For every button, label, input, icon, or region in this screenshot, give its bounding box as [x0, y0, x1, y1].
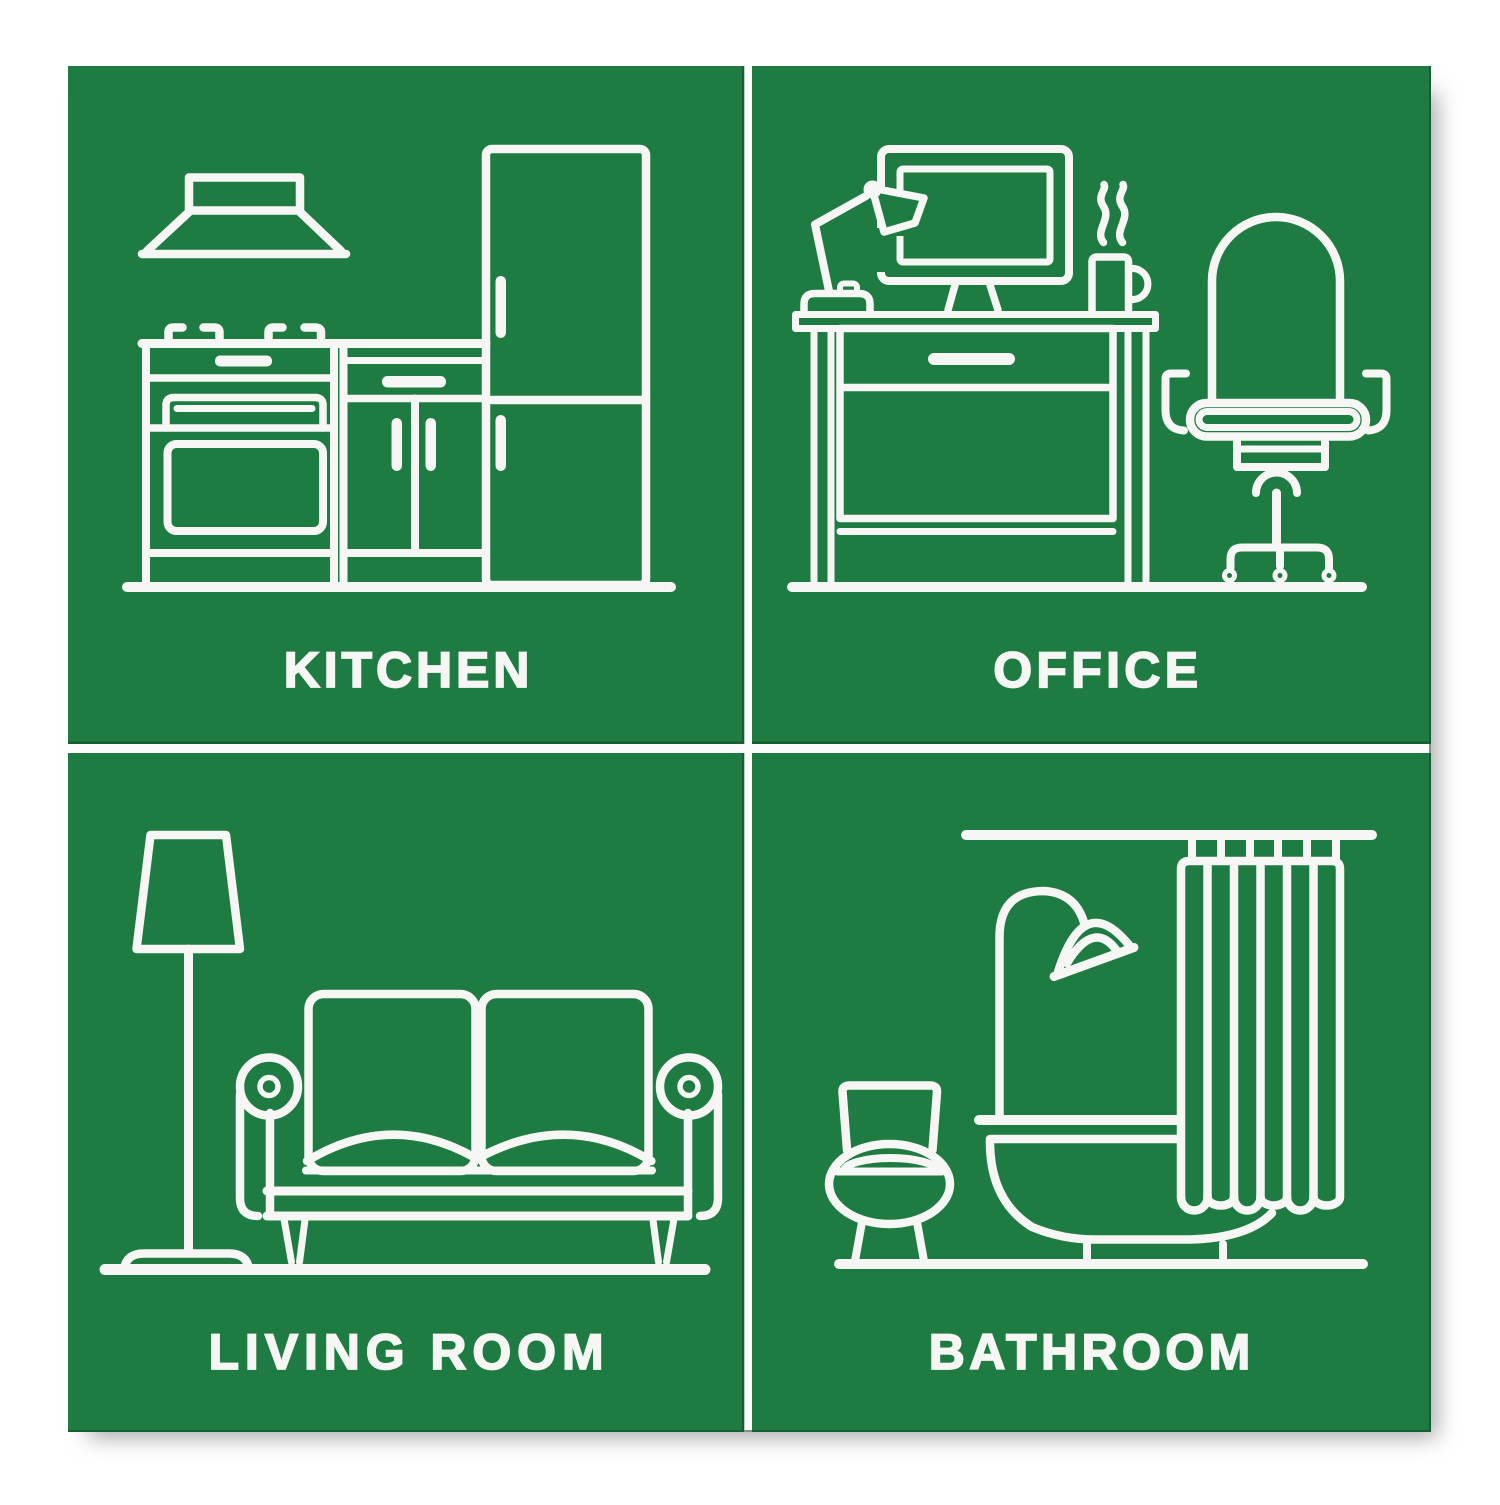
svg-text:OFFICE: OFFICE — [993, 642, 1202, 698]
svg-text:BATHROOM: BATHROOM — [929, 1324, 1255, 1380]
svg-text:KITCHEN: KITCHEN — [284, 642, 534, 698]
svg-text:LIVING ROOM: LIVING ROOM — [208, 1324, 609, 1380]
